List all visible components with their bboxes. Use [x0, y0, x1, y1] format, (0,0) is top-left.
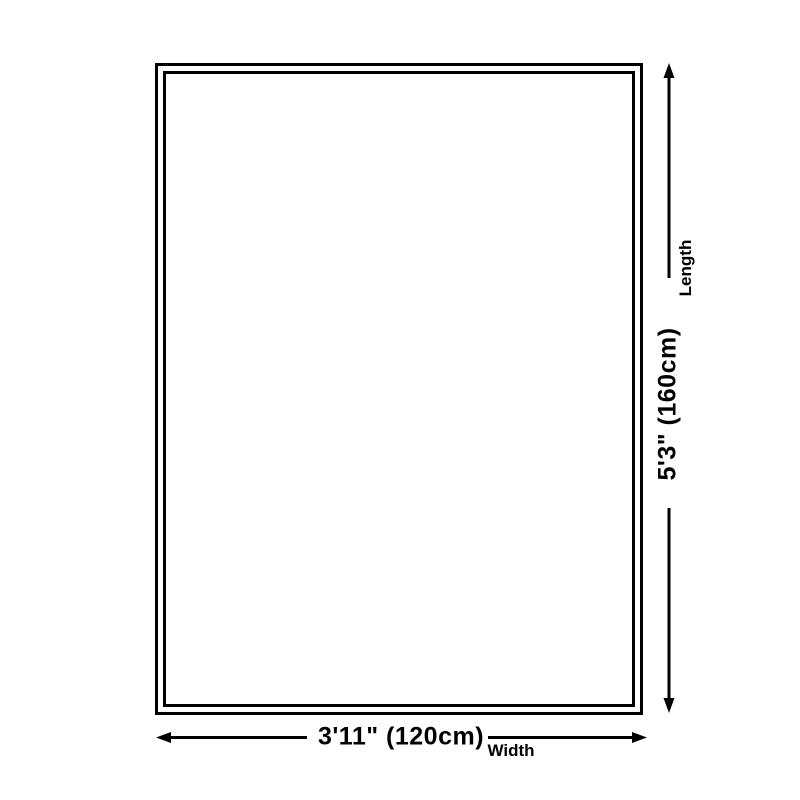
arrowhead-down-icon — [664, 698, 675, 713]
rug-size-diagram: 5'3" (160cm) Length 3'11" (120cm) Width — [0, 0, 800, 800]
length-value: 5'3" (160cm) — [654, 327, 683, 480]
arrowhead-right-icon — [632, 732, 647, 743]
rug-outline-inner — [163, 71, 635, 707]
arrowhead-left-icon — [156, 732, 171, 743]
length-label: Length — [676, 240, 696, 297]
rug-outline-outer — [155, 63, 643, 715]
width-label: Width — [487, 741, 534, 761]
width-value: 3'11" (120cm) — [318, 723, 484, 752]
